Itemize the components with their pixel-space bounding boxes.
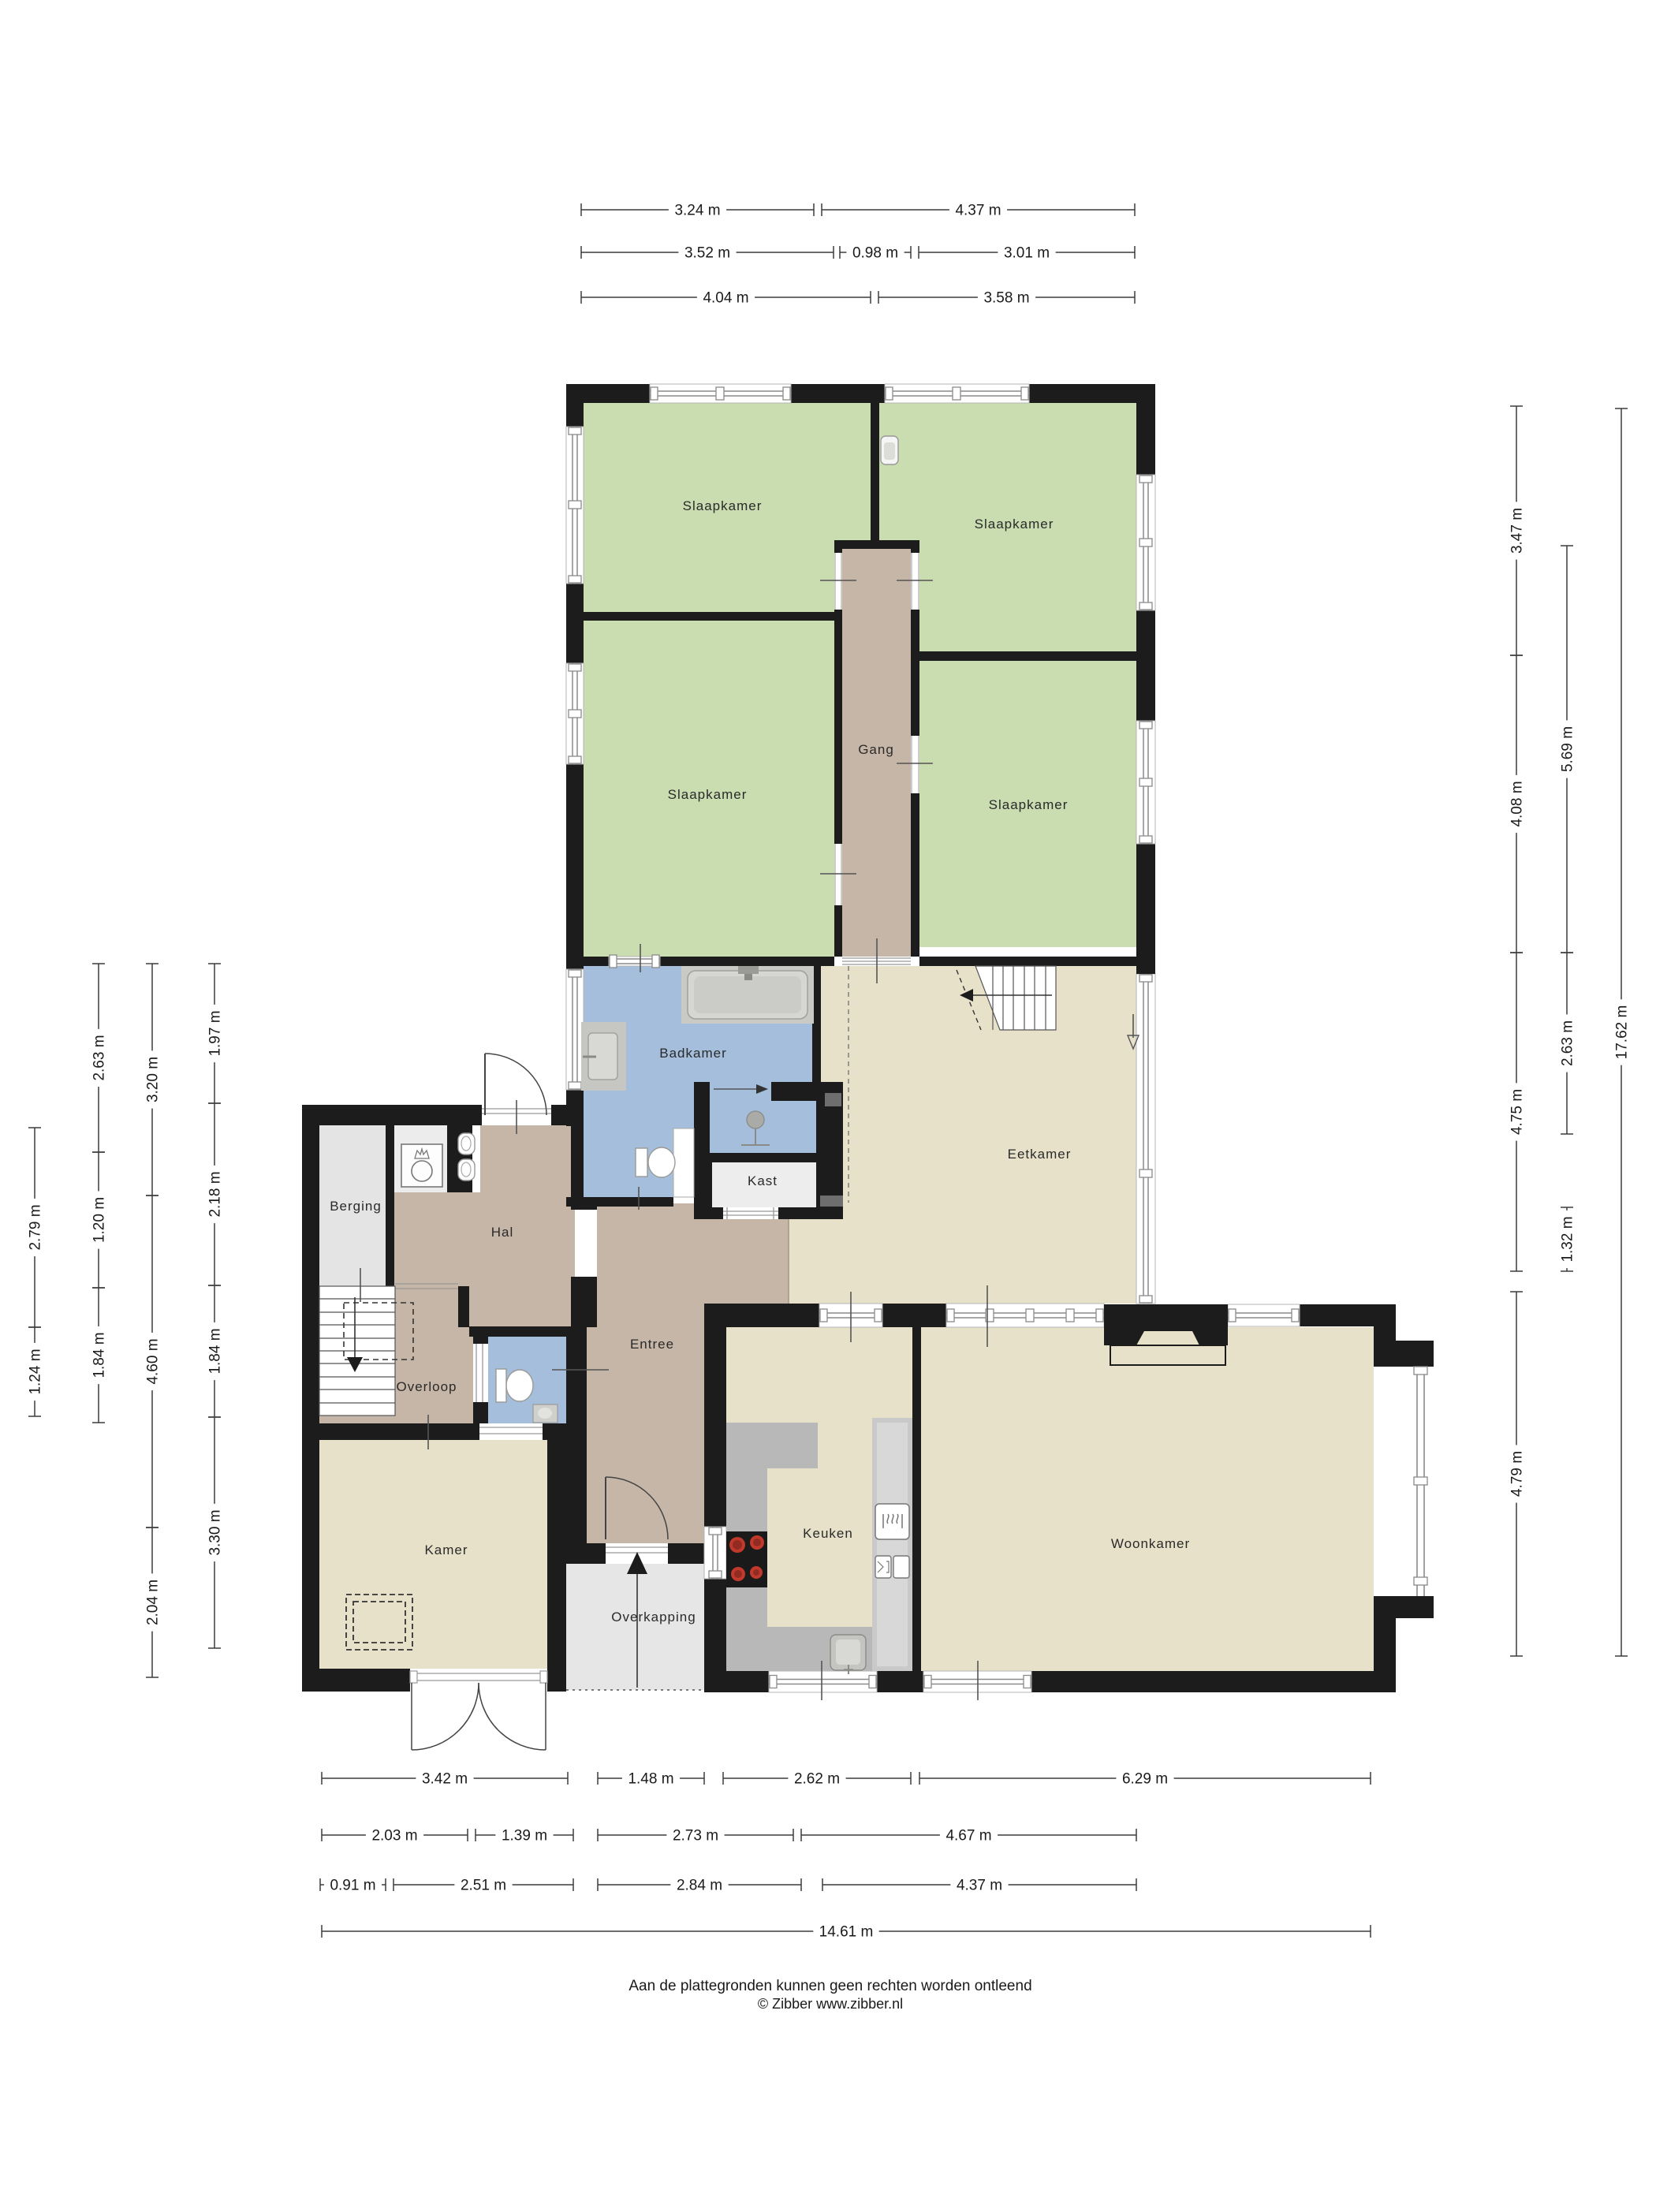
svg-text:2.63 m: 2.63 m: [1560, 1020, 1576, 1066]
svg-text:Berging: Berging: [330, 1199, 382, 1214]
svg-text:1.97 m: 1.97 m: [207, 1010, 224, 1056]
svg-text:3.01 m: 3.01 m: [1004, 245, 1050, 262]
svg-text:0.91 m: 0.91 m: [330, 1878, 375, 1894]
svg-text:Eetkamer: Eetkamer: [1008, 1147, 1072, 1162]
svg-text:Slaapkamer: Slaapkamer: [683, 498, 763, 513]
svg-text:Kast: Kast: [748, 1173, 778, 1188]
svg-text:0.98 m: 0.98 m: [852, 245, 898, 262]
svg-text:2.03 m: 2.03 m: [371, 1828, 417, 1845]
svg-text:1.84 m: 1.84 m: [207, 1328, 224, 1374]
svg-text:2.51 m: 2.51 m: [461, 1878, 506, 1894]
svg-text:2.84 m: 2.84 m: [677, 1878, 722, 1894]
svg-text:6.29 m: 6.29 m: [1122, 1771, 1168, 1788]
svg-text:3.58 m: 3.58 m: [983, 290, 1029, 307]
svg-text:14.61 m: 14.61 m: [819, 1924, 874, 1941]
svg-text:1.24 m: 1.24 m: [28, 1348, 44, 1394]
svg-text:3.30 m: 3.30 m: [207, 1509, 224, 1555]
svg-text:4.08 m: 4.08 m: [1509, 781, 1526, 826]
svg-text:4.75 m: 4.75 m: [1509, 1089, 1526, 1135]
svg-text:2.04 m: 2.04 m: [145, 1580, 162, 1625]
svg-text:2.63 m: 2.63 m: [91, 1035, 108, 1080]
svg-text:1.39 m: 1.39 m: [502, 1828, 547, 1845]
svg-text:1.20 m: 1.20 m: [91, 1197, 108, 1243]
svg-text:2.62 m: 2.62 m: [794, 1771, 840, 1788]
svg-text:4.67 m: 4.67 m: [945, 1828, 991, 1845]
svg-text:4.37 m: 4.37 m: [955, 203, 1001, 219]
svg-text:Aan de plattegronden kunnen ge: Aan de plattegronden kunnen geen rechten…: [628, 1978, 1031, 1994]
svg-text:Keuken: Keuken: [803, 1526, 853, 1541]
svg-text:2.73 m: 2.73 m: [673, 1828, 718, 1845]
svg-text:Gang: Gang: [858, 742, 894, 757]
svg-text:© Zibber www.zibber.nl: © Zibber www.zibber.nl: [758, 1996, 903, 2012]
svg-text:3.24 m: 3.24 m: [674, 203, 720, 219]
svg-text:4.60 m: 4.60 m: [145, 1338, 162, 1384]
svg-text:3.52 m: 3.52 m: [684, 245, 730, 262]
svg-text:1.32 m: 1.32 m: [1560, 1216, 1576, 1262]
svg-text:2.18 m: 2.18 m: [207, 1171, 224, 1217]
svg-text:3.20 m: 3.20 m: [145, 1057, 162, 1102]
svg-text:1.84 m: 1.84 m: [91, 1332, 108, 1378]
svg-text:Badkamer: Badkamer: [659, 1046, 726, 1061]
svg-text:Slaapkamer: Slaapkamer: [975, 517, 1054, 532]
svg-text:Overkapping: Overkapping: [611, 1610, 696, 1624]
svg-text:Slaapkamer: Slaapkamer: [989, 797, 1069, 812]
svg-text:3.42 m: 3.42 m: [422, 1771, 468, 1788]
svg-text:Entree: Entree: [630, 1337, 674, 1352]
svg-text:2.79 m: 2.79 m: [28, 1204, 44, 1250]
svg-text:4.79 m: 4.79 m: [1509, 1451, 1526, 1497]
svg-text:Woonkamer: Woonkamer: [1111, 1536, 1190, 1551]
svg-text:4.37 m: 4.37 m: [957, 1878, 1002, 1894]
svg-text:Kamer: Kamer: [424, 1542, 468, 1557]
svg-text:4.04 m: 4.04 m: [703, 290, 748, 307]
svg-text:3.47 m: 3.47 m: [1509, 508, 1526, 554]
svg-text:Slaapkamer: Slaapkamer: [668, 787, 748, 802]
svg-text:5.69 m: 5.69 m: [1560, 726, 1576, 772]
svg-text:1.48 m: 1.48 m: [628, 1771, 673, 1788]
svg-text:17.62 m: 17.62 m: [1614, 1005, 1631, 1060]
svg-text:Overloop: Overloop: [397, 1379, 457, 1394]
svg-text:Hal: Hal: [491, 1225, 514, 1240]
